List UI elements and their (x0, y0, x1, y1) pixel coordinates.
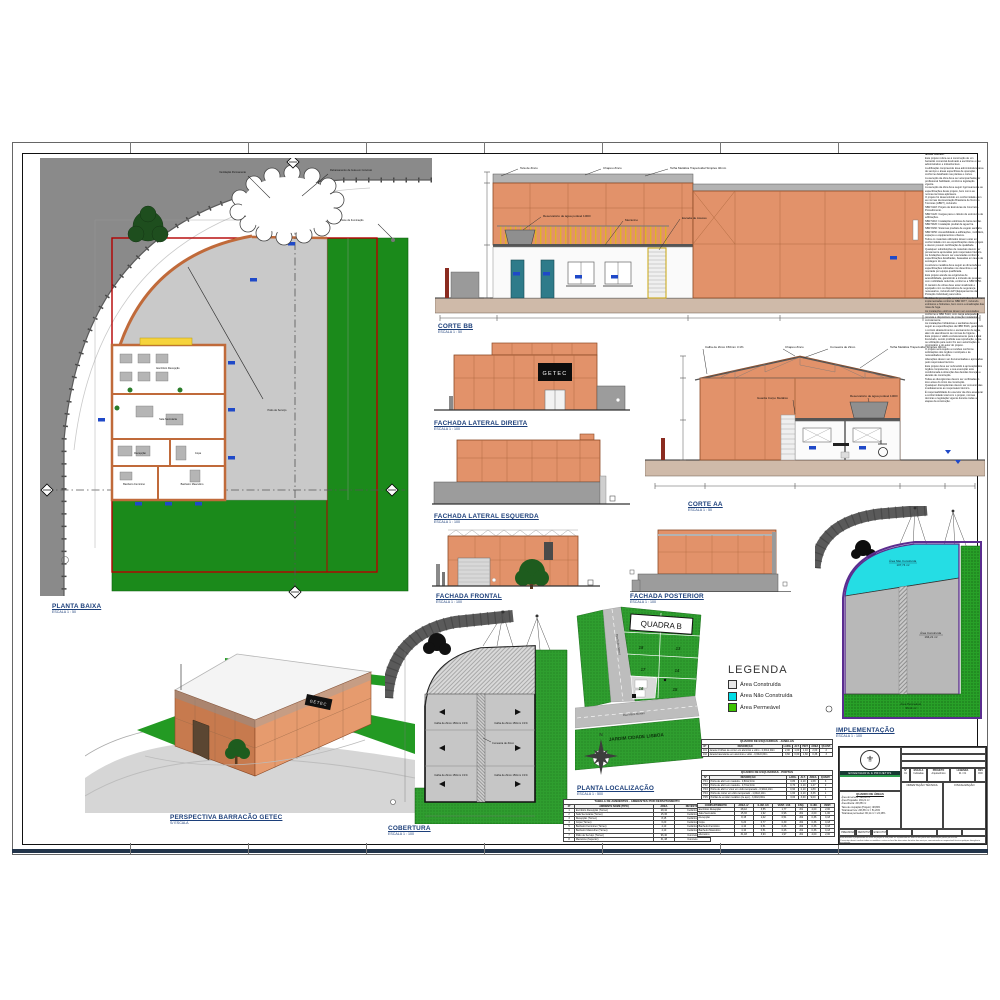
company-accent-bar (840, 775, 900, 777)
lot-number: 13 (676, 646, 681, 651)
notes-title: Notas Gerais: (925, 152, 984, 156)
approval-projetista: PROJETISTA (887, 829, 912, 836)
room-label-secretaria: Sala Secretaria (159, 417, 177, 421)
room-label-office: Escritório Recepção (156, 366, 180, 370)
annotation: Ventilação Permanente (219, 170, 246, 174)
view-label-fachada-posterior: FACHADA POSTERIORESCALA 1 : 100 (630, 594, 704, 605)
annotation: Rebaixamento de Guia em Concreto (330, 168, 373, 172)
field-descricao: DESCRIÇÃO: Barracão Comercial GETEC (901, 761, 986, 768)
annotation: Calha de Zinco 150mm i=1% (494, 721, 528, 725)
field-endereco: ENDEREÇO: Rua Mário Montini, Quadra B - … (901, 754, 986, 761)
annotation: Cumeeira de Zinco (492, 741, 514, 745)
planta-localizacao-drawing: 19 12 18 13 17 14 16 15 QUADRA B Rua Ped… (575, 606, 705, 784)
annotation: Cumeeira de Zinco (830, 345, 856, 349)
status-definitivo: DEFINITIVO (855, 829, 871, 836)
disclaimer: Este desenho é propriedade do autor do p… (839, 836, 986, 844)
table-row: P05Portão de enrolar metálico (de aço) -… (702, 796, 833, 800)
table-row: P03Porta de abrir c/ visor em vidro temp… (702, 788, 833, 792)
view-label-perspectiva: PERSPECTIVA BARRACÃO GETECS/ ESCALA (170, 815, 282, 826)
annotation: Guarda Corpo Metálico (757, 396, 788, 400)
col-rev: REVR00 (975, 768, 986, 782)
table-portas: QUADRO DE ESQUADRIAS - PORTAS NºDESCRIÇÃ… (701, 770, 833, 800)
room-label-wc-fem: Banheiro Feminino (123, 482, 145, 486)
approval-desenhista: DESENHISTA (912, 829, 937, 836)
company-emblem-icon: ⚜ (860, 750, 880, 770)
legend-item-construida: Área Construída (728, 680, 820, 689)
north-label: N (599, 732, 602, 737)
drawing-sheet: Escritório Recepção Sala Secretaria Rece… (0, 0, 1000, 1000)
room-label-copa: Copa (195, 451, 202, 455)
lot-number: 18 (639, 645, 644, 650)
annotation: Calha de Zinco 150mm i=1% (494, 773, 528, 777)
legend-swatch-nao-construida (728, 692, 737, 701)
corte-bb-drawing: Tela de Zinco Chapéu Zinco Telha Metálic… (435, 160, 985, 322)
legend-swatch-construida (728, 680, 737, 689)
quadro-areas: QUADRO DE ÁREAS Área do terreno: 398,06 … (839, 791, 901, 829)
legend-swatch-permeavel (728, 703, 737, 712)
legend-item-nao-construida: Área Não Construída (728, 692, 820, 701)
view-label-implementacao: IMPLEMENTAÇÃOESCALA 1 : 100 (836, 728, 895, 739)
orientacao-tecnica: ORIENTAÇÃO TÉCNICA (901, 782, 943, 829)
getec-sign: GETEC (543, 371, 568, 377)
table-ambientes: TABELA DE AMBIENTES - AMBIENTES POR DEPA… (563, 799, 711, 842)
table-row: 8Mezanino (Superior)31,48Concreto (564, 837, 711, 841)
room-label-patio: Pátio de Serviço (268, 408, 287, 412)
fiscalizacao: FISCALIZAÇÃO (943, 782, 986, 829)
annotation: Escada de Acesso (682, 216, 707, 220)
annotation: Tela de Zinco (520, 166, 538, 170)
annotation: Calha de Zinco 150mm i=1% (705, 345, 744, 349)
col-numero: Nº01 (901, 768, 910, 782)
status-executivo: EXECUTIVO (871, 829, 887, 836)
title-block: ⚜ ENGENHARIA & PROJETOS PROPRIETÁRIO: GE… (838, 746, 987, 845)
status-preliminar: PRELIMINAR (839, 829, 855, 836)
table-row: Mezanino31,483,931,97J014,002,00 (698, 832, 835, 836)
legend-item-permeavel: Área Permeável (728, 703, 820, 712)
col-legenda: LEGENDA01 / 01 (950, 768, 975, 782)
legend-title: LEGENDA (728, 664, 820, 676)
lot-number: 17 (641, 667, 646, 672)
col-escala: ESCALAIndicadas (910, 768, 927, 782)
annotation: Reservatório de água potável 1000l (850, 394, 898, 398)
logo-cell: ⚜ ENGENHARIA & PROJETOS (839, 747, 901, 791)
table-row: J01Janela 4 folhas de correr em alumínio… (702, 748, 833, 752)
sheet-bottom-rule (12, 849, 988, 853)
field-proprietario: PROPRIETÁRIO: GETEC (901, 747, 986, 754)
annotation: Chapéu Zinco (785, 345, 804, 349)
company-name: ENGENHARIA & PROJETOS (840, 771, 900, 775)
fachada-frontal-drawing (430, 522, 602, 592)
fachada-lateral-esquerda-drawing (432, 428, 632, 512)
col-projeto: PROJETOArquitetônico (927, 768, 950, 782)
table-row: J02Janela basculante em alumínio e vidro… (702, 752, 833, 756)
view-label-planta-baixa: PLANTA BAIXAESCALA 1 : 50 (52, 604, 101, 615)
annotation: Telha Metálica Trapezoidal Simples 40mm (670, 166, 727, 170)
view-label-corte-aa: CORTE AAESCALA 1 : 50 (688, 502, 723, 513)
notes-list: Este projeto refere-se à construção de u… (925, 157, 984, 403)
annotation: Calha de Zinco 150mm i=1% (434, 721, 468, 725)
implementacao-drawing: Área Não Construída 107,74 m² Área Const… (815, 506, 985, 726)
fachada-lateral-direita-drawing: GETEC (432, 338, 632, 420)
approval-verificado: VERIFICADO (937, 829, 962, 836)
annotation: Reservatório de água potável 1000l (543, 214, 591, 218)
lot-number: 14 (675, 668, 680, 673)
fachada-posterior-drawing (628, 522, 793, 592)
view-label-cobertura: COBERTURAESCALA 1 : 100 (388, 826, 431, 837)
planta-baixa-drawing: Escritório Recepção Sala Secretaria Rece… (40, 158, 432, 602)
legend: LEGENDA Área Construída Área Não Constru… (728, 664, 820, 715)
room-label-recepcao: Recepção (134, 451, 146, 455)
lot-number: 16 (639, 686, 644, 691)
view-label-planta-localizacao: PLANTA LOCALIZAÇÃOESCALA 1 : 500 (577, 786, 654, 797)
perspectiva-drawing: GETEC (85, 628, 415, 813)
cobertura-drawing: Calha de Zinco 150mm i=1% Calha de Zinco… (385, 606, 570, 824)
view-label-fachada-frontal: FACHADA FRONTALESCALA 1 : 100 (436, 594, 502, 605)
table-janelas: QUADRO DE ESQUADRIAS - JANELAS NºDESCRIÇ… (701, 739, 833, 757)
approval-aprovado: APROVADO (962, 829, 986, 836)
room-label-wc-masc: Banheiro Masculino (181, 482, 204, 486)
table-compartimentos: COMPARTIMENTOÁREA m²ILUM. 1/8VENT. 1/16E… (697, 803, 835, 837)
annotation: Chapéu Zinco (603, 166, 622, 170)
annotation: Poste de Iluminação (340, 218, 364, 222)
annotation: Calha de Zinco 150mm i=1% (434, 773, 468, 777)
annotation: Mezanino (625, 218, 638, 222)
general-notes: Notas Gerais: Este projeto refere-se à c… (925, 152, 984, 404)
view-label-corte-bb: CORTE BBESCALA 1 : 50 (438, 324, 473, 335)
lot-number: 15 (673, 687, 678, 692)
